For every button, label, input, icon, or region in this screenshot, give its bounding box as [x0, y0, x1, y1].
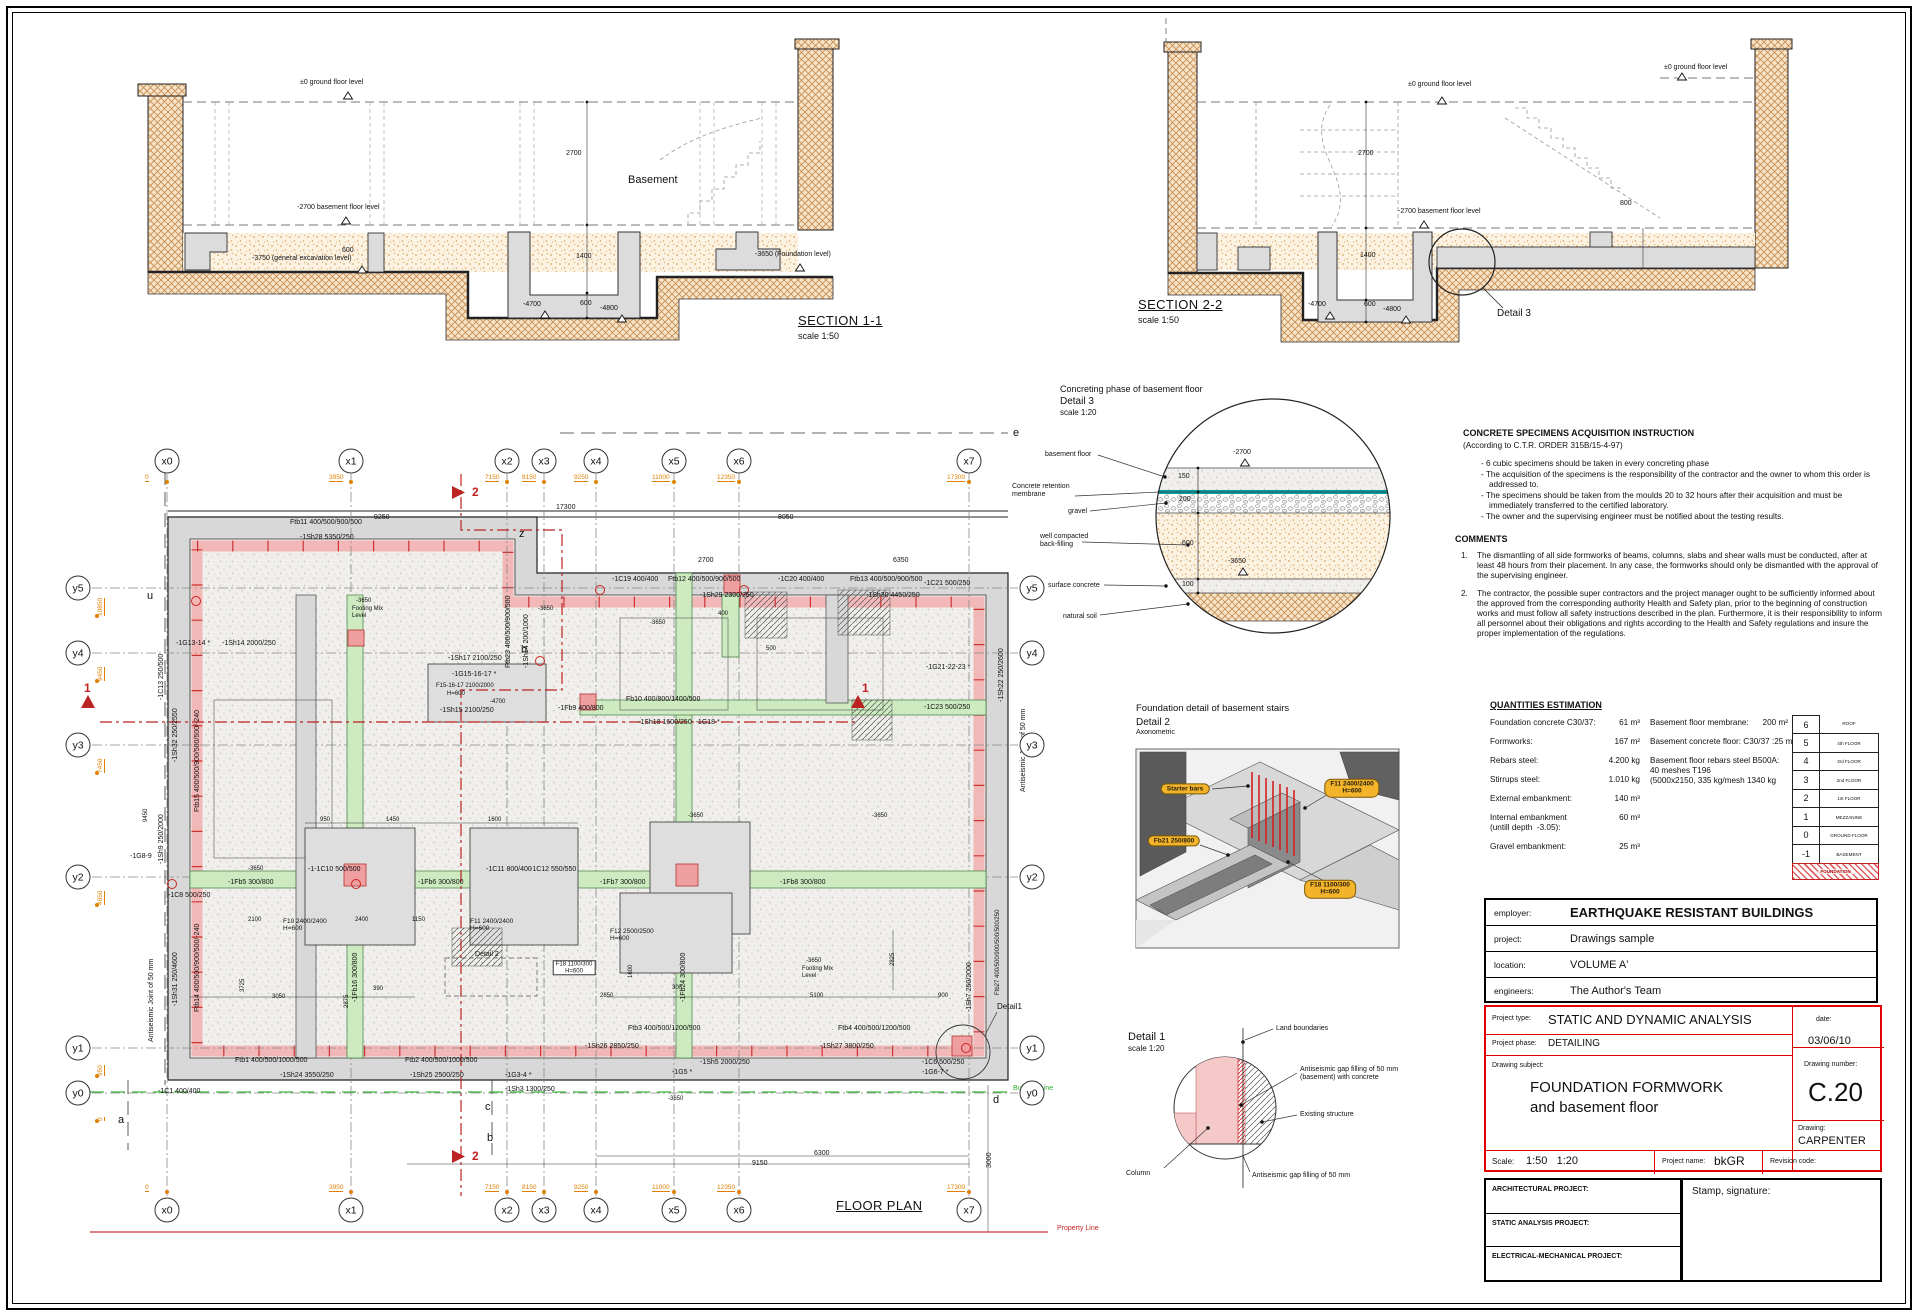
- quantity-value: 200 m²: [1763, 718, 1788, 728]
- grid-tick-dot: [594, 480, 598, 484]
- drawing-label: -3650: [650, 620, 665, 627]
- drawing-label: -3650: [688, 813, 703, 820]
- drawing-label: 17300: [556, 504, 575, 512]
- grid-tick-dot: [95, 771, 99, 775]
- drawing-label: ±0 ground floor level: [300, 79, 363, 87]
- quantities-title: QUANTITIES ESTIMATION: [1490, 700, 1790, 711]
- drawing-label: natural soil: [1063, 613, 1097, 621]
- drawing-label: F11 2400/2400 H=600: [470, 918, 513, 933]
- quantity-label: Internal embankment (untill depth -3.05)…: [1490, 813, 1567, 833]
- quantity-row: Foundation concrete C30/37:61 m³: [1490, 718, 1640, 728]
- storey-number: 3: [1792, 770, 1820, 790]
- drawing-label: Ftb3 400/500/1200/500: [628, 1025, 700, 1033]
- drawing-label: scale 1:50: [798, 331, 839, 341]
- drawing-label: -1C23 500/250: [924, 704, 970, 712]
- grid-dimension: 12350: [717, 474, 735, 482]
- comment-item: 2.The contractor, the possible super con…: [1461, 589, 1885, 639]
- drawing-label: -1Sh30 4450/250: [866, 592, 920, 600]
- grid-tick-dot: [95, 903, 99, 907]
- drawing-label: h: [521, 644, 527, 656]
- grid-bubble-x4: x4: [584, 449, 609, 474]
- comment-item: 1.The dismantling of all side formworks …: [1461, 551, 1885, 581]
- drawing-label: SECTION 1-1: [798, 314, 883, 329]
- drawing-label: Detail1: [997, 1003, 1022, 1012]
- drawing-label: -1G15-16-17 *: [452, 671, 496, 679]
- instruction-bullet: - 6 cubic specimens should be taken in e…: [1475, 459, 1887, 469]
- drawing-label: scale 1:20: [1128, 1045, 1164, 1054]
- drawing-label: 2400: [355, 917, 368, 924]
- grid-bubble-x3: x3: [532, 1198, 557, 1223]
- comments-panel: COMMENTS 1.The dismantling of all side f…: [1455, 534, 1885, 647]
- storey-row: 32nd FLOOR: [1792, 771, 1879, 790]
- drawing-label: 2875: [344, 995, 351, 1008]
- grid-bubble-y4: y4: [66, 641, 91, 666]
- grid-bubble-x6: x6: [727, 1198, 752, 1223]
- drawing-label: Ftb4 400/500/1200/500: [838, 1025, 910, 1033]
- grid-dimension: 8150: [522, 1184, 536, 1192]
- grid-bubble-y3: y3: [1020, 733, 1045, 758]
- drawing-label: 1450: [386, 817, 399, 824]
- drawing-label: 6300: [814, 1150, 830, 1158]
- grid-bubble-x5: x5: [662, 1198, 687, 1223]
- project-phase-value: DETAILING: [1548, 1038, 1600, 1049]
- drawing-label: scale 1:50: [1138, 315, 1179, 325]
- drawing-label: -1Sh3 1300/250: [505, 1086, 555, 1094]
- quantity-label: Formworks:: [1490, 737, 1533, 747]
- drawing-label: -1Fb9 400/800: [558, 705, 604, 713]
- quantity-row: Basement floor membrane:200 m²: [1650, 718, 1788, 728]
- drawing-label: 500: [766, 646, 776, 653]
- storey-row: 1MEZZANINE: [1792, 808, 1879, 827]
- location-label: location:: [1486, 960, 1570, 970]
- drawing-label: e: [1013, 427, 1019, 439]
- drawing-label: 950: [320, 817, 330, 824]
- storey-label: MEZZANINE: [1820, 807, 1879, 827]
- drawing-label: Ftb27 400/500/900/500/500/250: [995, 910, 1002, 995]
- storey-row: 0GROUND FLOOR: [1792, 827, 1879, 846]
- drawing-label: Starter bars: [1161, 783, 1210, 794]
- drawing-label: Foundation detail of basement stairs: [1136, 704, 1289, 715]
- grid-bubble-y4: y4: [1020, 641, 1045, 666]
- drawing-label: -4800: [600, 305, 618, 313]
- quantity-row: Basement concrete floor: C30/37 :25 m³: [1650, 737, 1788, 747]
- storey-label: ROOF: [1820, 715, 1878, 733]
- drawing-label: -1Sh22 250/2600: [998, 648, 1006, 702]
- grid-bubble-x1: x1: [339, 1198, 364, 1223]
- storey-number: 1: [1792, 807, 1820, 827]
- title-block-bottom: ARCHITECTURAL PROJECT: STATIC ANALYSIS P…: [1484, 1178, 1882, 1282]
- drawing-label: F18 1100/300 H=600: [553, 960, 596, 975]
- drawing-label: F12 2500/2500 H=600: [610, 928, 654, 943]
- drawing-label: Footing Mix Level: [352, 606, 383, 619]
- drawing-label: Concrete retention membrane: [1012, 483, 1070, 499]
- drawing-label: 400: [718, 611, 728, 618]
- drawing-subject-line1: FOUNDATION FORMWORK: [1530, 1079, 1723, 1096]
- engineers-label: engineers:: [1486, 986, 1570, 996]
- drawing-label: -1C11 800/400: [486, 866, 532, 874]
- storey-row: FOUNDATION: [1792, 864, 1879, 880]
- detail-3-drawing: [1075, 399, 1398, 633]
- drawing-label: -1Sh5 2000/250: [700, 1059, 750, 1067]
- grid-tick-dot: [737, 1190, 741, 1194]
- drawing-label: -1Fb16 300/800: [352, 953, 360, 1002]
- grid-bubble-y5: y5: [66, 576, 91, 601]
- storey-label: GROUND FLOOR: [1820, 826, 1879, 846]
- drawing-label: Antiseismic Joint of 50 mm: [148, 959, 156, 1042]
- drawing-label: -1Sh31 250/4600: [172, 952, 180, 1006]
- drawing-label: -1C13 250/500: [158, 654, 166, 700]
- storey-row: 6ROOF: [1792, 716, 1879, 734]
- drawing-label: -1C19 400/400: [612, 576, 658, 584]
- drawing-label: Axonometric: [1136, 729, 1175, 737]
- grid-dimension: 17300: [947, 474, 965, 482]
- project-label: project:: [1486, 934, 1570, 944]
- concrete-specimens-panel: CONCRETE SPECIMENS ACQUISITION INSTRUCTI…: [1463, 428, 1887, 523]
- drawing-label: 1400: [576, 253, 592, 261]
- quantity-row: Stirrups steel:1.010 kg: [1490, 775, 1640, 785]
- grid-dimension: 3950: [329, 1184, 343, 1192]
- quantity-row: Internal embankment (untill depth -3.05)…: [1490, 813, 1640, 833]
- drawing-label: -1G6-7 *: [922, 1069, 948, 1077]
- drawing-label: -1Fb5 300/800: [228, 879, 274, 887]
- storey-label: 2nd FLOOR: [1820, 770, 1879, 790]
- drawing-label: -4700: [523, 301, 541, 309]
- grid-dimension: 7150: [485, 474, 499, 482]
- project-type-label: Project type:: [1492, 1015, 1531, 1022]
- grid-tick-dot: [672, 480, 676, 484]
- grid-dimension: 8150: [522, 474, 536, 482]
- drawing-label: 2700: [1358, 150, 1374, 158]
- grid-tick-dot: [967, 1190, 971, 1194]
- storey-row: 54th FLOOR: [1792, 734, 1879, 753]
- grid-dimension: 7150: [485, 1184, 499, 1192]
- drawing-label: 2100: [248, 917, 261, 924]
- drawing-number-value: C.20: [1808, 1077, 1863, 1108]
- quantity-label: Basement floor membrane:: [1650, 718, 1749, 728]
- grid-bubble-x7: x7: [957, 1198, 982, 1223]
- drawing-label: FLOOR PLAN: [836, 1199, 922, 1214]
- grid-tick-dot: [95, 679, 99, 683]
- drawing-label: 150: [1178, 473, 1190, 481]
- drawing-label: 600: [1182, 540, 1194, 548]
- storey-label: 1st FLOOR: [1820, 789, 1879, 809]
- drawing-label: Ftb13 400/500/900/500: [850, 576, 922, 584]
- grid-bubble-x5: x5: [662, 449, 687, 474]
- drawing-label: Footing Mix Level: [802, 966, 833, 979]
- drawing-label: -1Sh28 5350/250: [300, 534, 354, 542]
- drawing-label: -1Fb8 300/800: [780, 879, 826, 887]
- drawing-label: F15-16-17 2100/2000: [436, 683, 494, 690]
- quantity-label: Stirrups steel:: [1490, 775, 1540, 785]
- drawing-label: F18 1100/300 H=600: [1304, 880, 1356, 899]
- quantities-panel: QUANTITIES ESTIMATION Foundation concret…: [1490, 700, 1790, 723]
- grid-dimension: 12350: [717, 1184, 735, 1192]
- drawing-sheet: ±0 ground floor level-2700 basement floo…: [0, 0, 1918, 1316]
- storey-number: -1: [1792, 844, 1820, 864]
- employer-value: EARTHQUAKE RESISTANT BUILDINGS: [1570, 905, 1813, 920]
- drawing-label: 9450: [143, 809, 150, 822]
- drawing-label: -3750 (general excavation level): [252, 255, 352, 263]
- engineers-row: engineers: The Author's Team: [1486, 978, 1876, 1004]
- drawing-label: -3650: [872, 813, 887, 820]
- title-block-red: Project type: STATIC AND DYNAMIC ANALYSI…: [1484, 1005, 1882, 1172]
- drawing-label: -3650: [248, 866, 263, 873]
- drawing-label: ±0 ground floor level: [1408, 81, 1471, 89]
- drawing-label: 8050: [778, 514, 794, 522]
- drawing-label: -3650 (Foundation level): [755, 251, 831, 259]
- grid-bubble-y0: y0: [1020, 1081, 1045, 1106]
- drawing-label: -2700 basement floor level: [297, 204, 380, 212]
- grid-dimension: 0: [145, 1184, 149, 1192]
- drawing-subject-line2: and basement floor: [1530, 1099, 1658, 1116]
- drawing-label: 2825: [890, 953, 897, 966]
- drawing-label: F10 2400/2400 H=600: [283, 918, 327, 933]
- drawing-label: -4700: [1308, 301, 1326, 309]
- employer-label: employer:: [1486, 908, 1570, 918]
- drawing-label: -3650: [356, 598, 371, 605]
- drawing-label: -1C1 400/400: [158, 1088, 200, 1096]
- project-name-value: bkGR: [1714, 1154, 1745, 1168]
- drawing-label: Detail 3: [1497, 308, 1531, 319]
- drawing-label: -1Fb6 300/800: [418, 879, 464, 887]
- quantity-value: 4.200 kg: [1609, 756, 1640, 766]
- drawing-label: ±0 ground floor level: [1664, 64, 1727, 72]
- quantity-value: 167 m²: [1615, 737, 1640, 747]
- grid-tick-dot: [505, 1190, 509, 1194]
- drawing-label: 200: [1179, 496, 1191, 504]
- quantity-value: 61 m³: [1619, 718, 1640, 728]
- drawing-label: -3650: [668, 1096, 683, 1103]
- drawing-label: Ftb2 400/500/1000/500: [405, 1057, 477, 1065]
- drawing-label: -1C20 400/400: [778, 576, 824, 584]
- drawing-label: Antiseismic gap filling of 50 mm: [1252, 1172, 1350, 1180]
- grid-dimension: 3950: [329, 474, 343, 482]
- drawing-label: Antiseismic gap filling of 50 mm (baseme…: [1300, 1066, 1398, 1082]
- quantity-label: Rebars steel:: [1490, 756, 1538, 766]
- drawing-label: Detail 2: [475, 951, 499, 959]
- drawing-label: Property Line: [1057, 1225, 1099, 1233]
- storey-label: BASEMENT: [1820, 844, 1879, 864]
- drawing-label: 600: [580, 300, 592, 308]
- drawing-label: 800: [1620, 200, 1632, 208]
- storey-number: 0: [1792, 826, 1820, 846]
- drawing-label: -3650: [538, 606, 553, 613]
- drawing-label: scale 1:20: [1060, 409, 1096, 418]
- drawing-label: Basement: [628, 174, 678, 186]
- project-phase-label: Project phase:: [1492, 1040, 1537, 1047]
- scale-value: 1:50 1:20: [1526, 1155, 1578, 1167]
- drawing-label: -2700 basement floor level: [1398, 208, 1481, 216]
- storey-number: 6: [1792, 715, 1820, 735]
- drawing-label: 1600: [628, 965, 635, 978]
- drawing-label: 1: [84, 682, 91, 695]
- comment-text: The contractor, the possible super contr…: [1477, 589, 1885, 639]
- drawing-label: Existing structure: [1300, 1111, 1354, 1119]
- storey-row: 21st FLOOR: [1792, 790, 1879, 809]
- drawing-label: Land boundaries: [1276, 1025, 1328, 1033]
- quantity-row: External embankment:140 m³: [1490, 794, 1640, 804]
- drawing-label: -1Sh32 250/2550: [172, 708, 180, 762]
- grid-tick-dot: [505, 480, 509, 484]
- grid-tick-dot: [349, 480, 353, 484]
- drawing-label: -1Sh14 2000/250: [222, 640, 276, 648]
- drawing-label: Drawing:: [1798, 1125, 1826, 1132]
- location-value: VOLUME A': [1570, 959, 1628, 971]
- drawing-label: -2700: [1233, 449, 1251, 457]
- drawing-label: 100: [1182, 581, 1194, 589]
- grid-bubble-x0: x0: [155, 449, 180, 474]
- drawing-label: -1-1C10 500/500: [308, 866, 361, 874]
- drawing-label: -1Sh29 2300/250: [700, 592, 754, 600]
- drawing-label: 300: [672, 985, 682, 992]
- drawing-label: -1Fb7 300/800: [600, 879, 646, 887]
- storey-label: FOUNDATION: [1818, 869, 1852, 874]
- drawing-label: -1C21 500/250: [924, 580, 970, 588]
- static-analysis-project-label: STATIC ANALYSIS PROJECT:: [1492, 1220, 1589, 1227]
- scale-label: Scale:: [1492, 1157, 1514, 1166]
- grid-bubble-y1: y1: [66, 1036, 91, 1061]
- drawing-label: -1C6 500/250: [922, 1059, 964, 1067]
- grid-tick-dot: [594, 1190, 598, 1194]
- storey-number: 5: [1792, 733, 1820, 753]
- drawing-label: 1: [862, 682, 869, 695]
- floor-plan-drawing: [81, 433, 1048, 1232]
- stamp-signature-label: Stamp, signature:: [1692, 1186, 1770, 1197]
- drawing-label: -3650: [806, 958, 821, 965]
- grid-tick-dot: [672, 1190, 676, 1194]
- drawing-label: 1150: [412, 917, 425, 924]
- date-value: 03/06/10: [1808, 1035, 1851, 1047]
- drawing-label: -3650: [1228, 558, 1246, 566]
- drawing-label: Concreting phase of basement floor: [1060, 384, 1203, 394]
- drawing-label: -1Sh17 2100/250: [448, 655, 502, 663]
- quantity-value: 1.010 kg: [1609, 775, 1640, 785]
- drawing-label: 2: [472, 1150, 479, 1163]
- drawing-label: -1G5 *: [672, 1069, 692, 1077]
- employer-row: employer: EARTHQUAKE RESISTANT BUILDINGS: [1486, 900, 1876, 926]
- grid-bubble-y0: y0: [66, 1081, 91, 1106]
- grid-bubble-x6: x6: [727, 449, 752, 474]
- instruction-bullet: - The owner and the supervising engineer…: [1475, 512, 1887, 522]
- date-label: date:: [1816, 1016, 1832, 1023]
- grid-tick-dot: [349, 1190, 353, 1194]
- quantity-label: Foundation concrete C30/37:: [1490, 718, 1596, 728]
- grid-dimension: 10850: [97, 598, 105, 616]
- drawing-label: -1Sh25 2500/250: [410, 1072, 464, 1080]
- instruction-bullet: - The acquisition of the specimens is th…: [1475, 470, 1887, 490]
- quantity-row: Formworks:167 m²: [1490, 737, 1640, 747]
- storey-row: 43rd FLOOR: [1792, 753, 1879, 772]
- drawing-label: basement floor: [1045, 451, 1091, 459]
- grid-bubble-y2: y2: [1020, 865, 1045, 890]
- drawing-label: Ftb11 400/500/900/500: [290, 519, 362, 527]
- drawing-value: CARPENTER: [1798, 1135, 1866, 1147]
- detail-1-drawing: [1164, 1028, 1297, 1188]
- storey-foundation-cell: FOUNDATION: [1792, 863, 1879, 880]
- drawing-label: 1600: [488, 817, 501, 824]
- quantity-value: 140 m³: [1615, 794, 1640, 804]
- drawing-label: 6350: [893, 557, 909, 565]
- drawing-label: Detail 1: [1128, 1031, 1165, 1043]
- instruction-bullet: - The specimens should be taken from the…: [1475, 491, 1887, 511]
- grid-tick-dot: [737, 480, 741, 484]
- grid-dimension: 11000: [652, 1184, 670, 1192]
- title-block-top: employer: EARTHQUAKE RESISTANT BUILDINGS…: [1484, 898, 1878, 1003]
- drawing-label: 600: [1364, 301, 1376, 309]
- drawing-label: gravel: [1068, 508, 1087, 516]
- drawing-label: Detail 2: [1136, 717, 1170, 728]
- drawing-label: -1Sh26 2850/250: [585, 1043, 639, 1051]
- grid-dimension: 17300: [947, 1184, 965, 1192]
- project-row: project: Drawings sample: [1486, 926, 1876, 952]
- drawing-label: Ftb14 400/500/900/500/-240: [194, 924, 202, 1012]
- drawing-label: 2700: [566, 150, 582, 158]
- grid-bubble-x0: x0: [155, 1198, 180, 1223]
- drawing-label: Ftb15 400/500/900/500/500/-240: [194, 710, 202, 812]
- drawing-label: 5100: [810, 993, 823, 1000]
- drawing-label: 3000: [986, 1152, 994, 1168]
- drawing-label: Fb10 400/800/1400/500: [626, 696, 700, 704]
- grid-tick-dot: [95, 1119, 99, 1123]
- drawing-label: Ftb12 400/500/900/500: [668, 576, 740, 584]
- drawing-label: a: [118, 1114, 124, 1126]
- grid-bubble-x4: x4: [584, 1198, 609, 1223]
- grid-tick-dot: [95, 1074, 99, 1078]
- drawing-label: 600: [342, 247, 354, 255]
- drawing-label: -1Sh18 1600/250 -1G18 *: [638, 719, 720, 727]
- quantity-row: Basement floor rebars steel B500A: 40 me…: [1650, 756, 1788, 786]
- drawing-label: SECTION 2-2: [1138, 298, 1223, 313]
- drawing-label: 390: [373, 986, 383, 993]
- storey-label: 4th FLOOR: [1820, 733, 1879, 753]
- drawing-label: -1G21-22-23 *: [926, 664, 970, 672]
- storey-indicator: 6ROOF54th FLOOR43rd FLOOR32nd FLOOR21st …: [1792, 716, 1879, 880]
- grid-bubble-x2: x2: [495, 1198, 520, 1223]
- quantity-label: Basement concrete floor: C30/37 :: [1650, 737, 1774, 747]
- drawing-label: -1C8 500/250: [168, 892, 210, 900]
- drawing-label: Ftb1 400/500/1000/500: [235, 1057, 307, 1065]
- project-type-value: STATIC AND DYNAMIC ANALYSIS: [1548, 1012, 1752, 1027]
- section-1-1-drawing: [138, 39, 839, 340]
- revision-code-label: Revision code:: [1770, 1158, 1816, 1165]
- drawing-label: -1Sh27 3800/250: [820, 1043, 874, 1051]
- project-name-label: Project name:: [1662, 1158, 1705, 1165]
- engineers-value: The Author's Team: [1570, 985, 1661, 997]
- quantity-row: Gravel embankment:25 m³: [1490, 842, 1640, 852]
- drawing-label: 1400: [1360, 252, 1376, 260]
- drawing-label: -1Sh15 2100/250: [440, 707, 494, 715]
- instructions-title: CONCRETE SPECIMENS ACQUISITION INSTRUCTI…: [1463, 428, 1887, 439]
- drawing-label: 900: [938, 993, 948, 1000]
- storey-number: 4: [1792, 752, 1820, 772]
- drawing-label: Column: [1126, 1170, 1150, 1178]
- drawing-label: -4800: [1383, 306, 1401, 314]
- drawing-label: 2: [472, 486, 479, 499]
- drawing-label: -1Fb24 300/800: [680, 953, 688, 1002]
- grid-tick-dot: [542, 1190, 546, 1194]
- drawing-label: H=600: [447, 691, 465, 698]
- grid-tick-dot: [165, 480, 169, 484]
- drawing-label: -1Sh7 250/2000: [966, 962, 974, 1012]
- grid-tick-dot: [95, 614, 99, 618]
- drawing-label: 2850: [600, 993, 613, 1000]
- grid-dimension: 0: [145, 474, 149, 482]
- instructions-subtitle: (According to C.T.R. ORDER 315B/15-4-97): [1463, 441, 1887, 451]
- drawing-label: -1Sh9 250/2000: [158, 814, 166, 864]
- grid-bubble-x2: x2: [495, 449, 520, 474]
- architectural-project-label: ARCHITECTURAL PROJECT:: [1492, 1186, 1588, 1193]
- drawing-label: z: [519, 528, 525, 540]
